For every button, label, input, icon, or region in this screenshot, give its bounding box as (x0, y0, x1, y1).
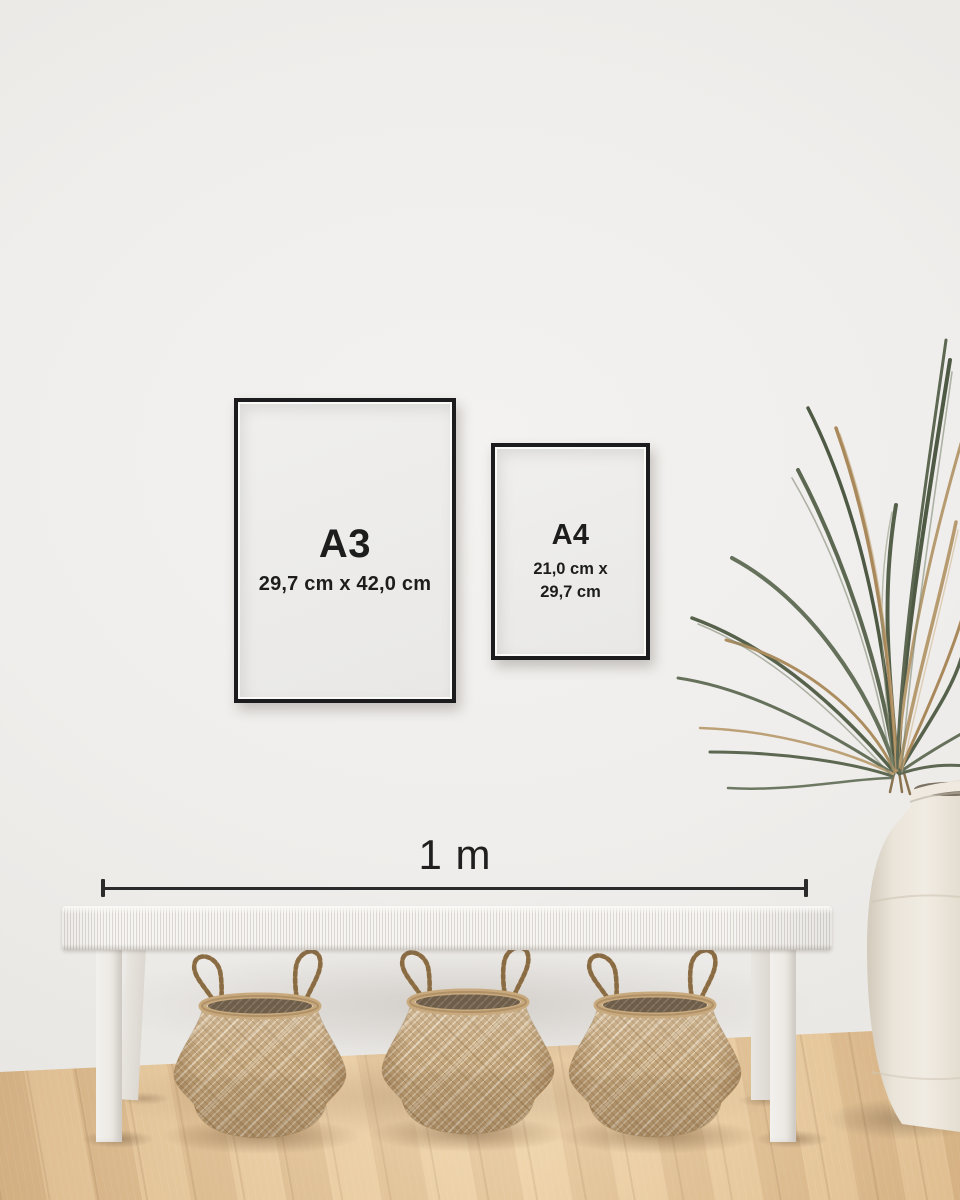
a3-dimensions-text: 29,7 cm x 42,0 cm (259, 573, 431, 596)
bench-leg-front-left (96, 948, 122, 1142)
dried-palm-plant (640, 300, 960, 800)
bench-seat (62, 906, 832, 950)
a4-size-label: A4 (533, 520, 607, 552)
a4-dimensions-line2: 29,7 cm (533, 581, 607, 604)
a4-dimensions-text: 21,0 cm x 29,7 cm (533, 558, 607, 605)
a3-poster-frame: A3 29,7 cm x 42,0 cm (234, 398, 456, 703)
basket-3 (569, 950, 741, 1137)
scale-bar-tick-right (804, 879, 808, 897)
floor-vase (838, 780, 960, 1200)
basket-1 (174, 951, 346, 1138)
a3-size-label: A3 (259, 522, 431, 566)
scale-bar-label: 1 m (102, 831, 808, 879)
a3-poster: A3 29,7 cm x 42,0 cm (259, 522, 431, 596)
a4-poster-frame: A4 21,0 cm x 29,7 cm (491, 443, 650, 660)
poster-size-guide-scene: A3 29,7 cm x 42,0 cm A4 21,0 cm x 29,7 c… (0, 0, 960, 1200)
a4-dimensions-line1: 21,0 cm x (533, 558, 607, 581)
seagrass-baskets (140, 948, 800, 1173)
scale-bar-line (102, 887, 808, 890)
a4-poster: A4 21,0 cm x 29,7 cm (533, 520, 607, 605)
basket-2 (382, 948, 554, 1134)
scale-bar-tick-left (101, 879, 105, 897)
bench-leg-front-right (770, 948, 796, 1142)
